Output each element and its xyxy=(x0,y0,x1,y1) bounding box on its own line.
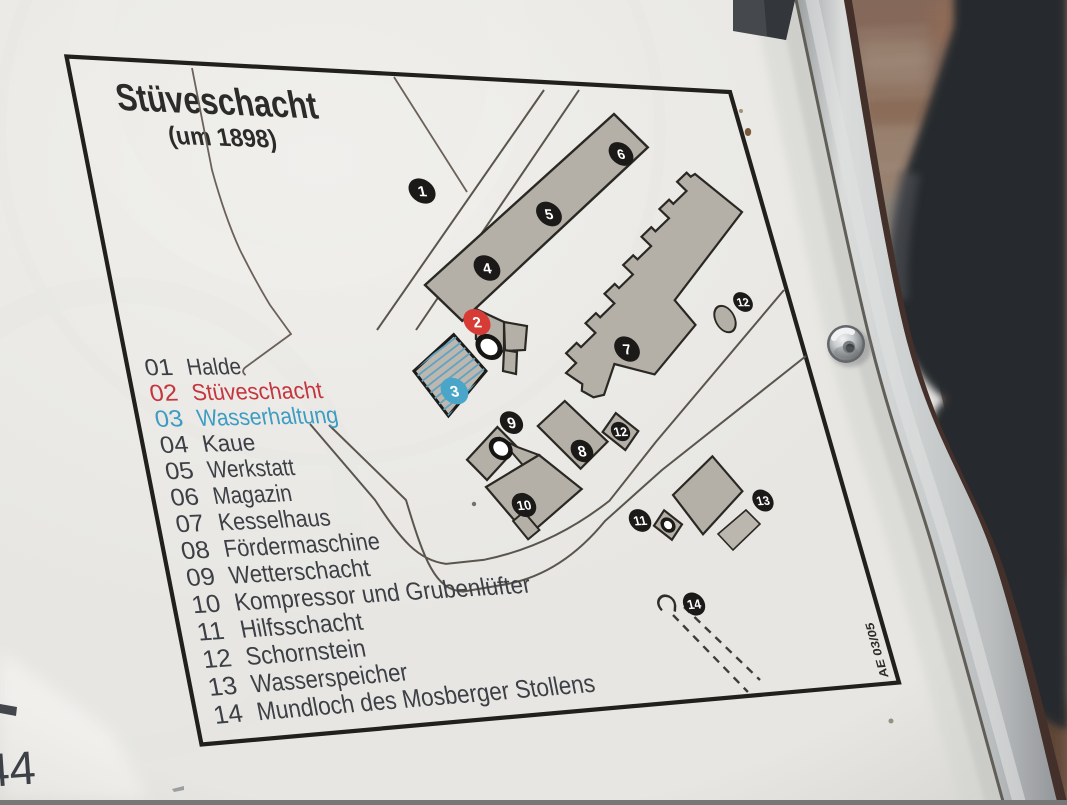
svg-text:(um 1898): (um 1898) xyxy=(165,121,279,153)
svg-text:06: 06 xyxy=(168,484,201,511)
svg-text:04: 04 xyxy=(158,432,191,459)
svg-text:12: 12 xyxy=(200,645,234,674)
svg-text:11: 11 xyxy=(195,617,227,646)
svg-text:09: 09 xyxy=(184,563,218,592)
svg-text:Wasserhaltung: Wasserhaltung xyxy=(195,403,341,432)
svg-text:02: 02 xyxy=(147,380,180,406)
svg-text:Stüveschacht: Stüveschacht xyxy=(112,76,322,127)
svg-text:01: 01 xyxy=(142,355,175,381)
svg-text:13: 13 xyxy=(206,672,240,702)
svg-text:Halde: Halde xyxy=(184,354,243,380)
svg-text:08: 08 xyxy=(178,536,212,564)
svg-text:10: 10 xyxy=(189,590,223,619)
svg-text:Werkstatt: Werkstatt xyxy=(205,455,297,484)
svg-text:07: 07 xyxy=(173,510,207,538)
svg-text:44: 44 xyxy=(0,741,37,798)
svg-text:Kaue: Kaue xyxy=(200,430,258,457)
svg-text:03: 03 xyxy=(152,406,185,432)
svg-text:Stüveschacht: Stüveschacht xyxy=(190,378,326,406)
svg-text:05: 05 xyxy=(163,458,196,485)
svg-text:14: 14 xyxy=(211,700,245,730)
